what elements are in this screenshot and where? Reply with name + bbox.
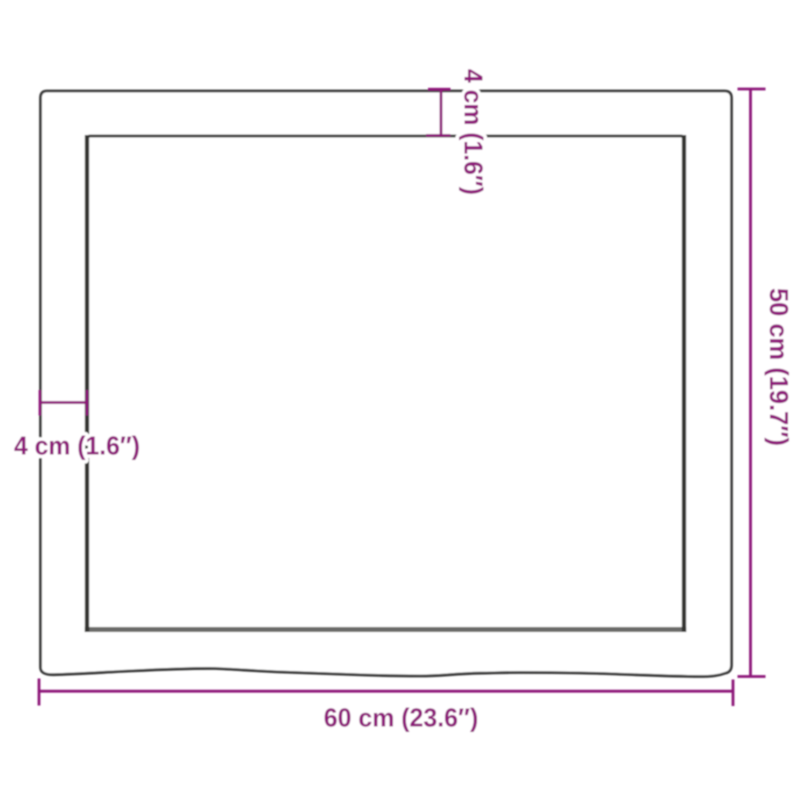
svg-text:4 cm (1.6″): 4 cm (1.6″)	[459, 69, 489, 195]
svg-text:4 cm (1.6″): 4 cm (1.6″)	[14, 431, 140, 461]
svg-text:60 cm (23.6″): 60 cm (23.6″)	[324, 703, 479, 733]
svg-text:50 cm (19.7″): 50 cm (19.7″)	[764, 288, 794, 446]
